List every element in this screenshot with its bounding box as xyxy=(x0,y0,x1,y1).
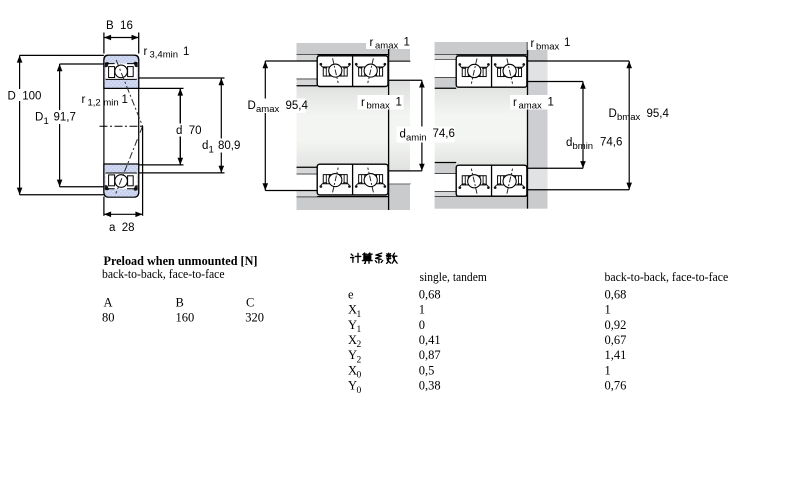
svg-text:320: 320 xyxy=(245,311,264,325)
svg-text:bmax: bmax xyxy=(536,42,559,53)
svg-text:r: r xyxy=(513,97,517,109)
svg-text:1: 1 xyxy=(44,116,49,127)
svg-text:91,7: 91,7 xyxy=(54,112,76,124)
svg-text:bmin: bmin xyxy=(573,141,594,152)
svg-text:1: 1 xyxy=(548,97,554,109)
svg-text:0,92: 0,92 xyxy=(605,318,627,332)
svg-text:C: C xyxy=(246,296,254,310)
svg-text:1: 1 xyxy=(209,145,214,156)
svg-text:0,41: 0,41 xyxy=(419,333,441,347)
svg-text:0,87: 0,87 xyxy=(419,348,441,362)
svg-text:d: d xyxy=(566,137,572,149)
svg-text:1,2 min: 1,2 min xyxy=(88,98,119,109)
svg-text:D 100: D 100 xyxy=(8,91,42,103)
svg-text:0,5: 0,5 xyxy=(419,363,435,377)
svg-text:74,6: 74,6 xyxy=(600,137,622,149)
svg-text:1: 1 xyxy=(396,97,402,109)
svg-text:0,38: 0,38 xyxy=(419,379,441,393)
svg-text:1: 1 xyxy=(183,46,189,58)
svg-text:0,67: 0,67 xyxy=(605,333,627,347)
svg-text:95,4: 95,4 xyxy=(286,100,309,112)
svg-text:0,68: 0,68 xyxy=(419,287,441,301)
svg-text:r: r xyxy=(82,94,86,106)
svg-text:a 28: a 28 xyxy=(109,222,135,234)
svg-text:80: 80 xyxy=(102,311,115,325)
svg-text:r: r xyxy=(361,97,365,109)
svg-text:d: d xyxy=(202,140,208,152)
svg-text:1: 1 xyxy=(357,310,362,320)
svg-text:1: 1 xyxy=(605,363,611,377)
svg-text:amax: amax xyxy=(375,41,398,52)
svg-text:single, tandem: single, tandem xyxy=(420,270,488,284)
svg-text:B 16: B 16 xyxy=(106,20,133,32)
svg-text:0,68: 0,68 xyxy=(605,287,627,301)
svg-text:D: D xyxy=(609,108,617,120)
svg-text:160: 160 xyxy=(176,311,195,325)
svg-text:1: 1 xyxy=(357,325,362,335)
svg-text:D: D xyxy=(248,100,256,112)
svg-text:back-to-back, face-to-face: back-to-back, face-to-face xyxy=(102,267,225,281)
svg-text:A: A xyxy=(104,296,113,310)
svg-text:80,9: 80,9 xyxy=(218,140,240,152)
svg-text:r: r xyxy=(531,38,535,50)
svg-text:1: 1 xyxy=(605,303,611,317)
svg-text:d: d xyxy=(400,129,406,141)
svg-text:bmax: bmax xyxy=(367,101,390,112)
svg-text:B: B xyxy=(176,296,184,310)
svg-text:1: 1 xyxy=(122,94,128,106)
svg-text:0: 0 xyxy=(419,318,425,332)
svg-text:0: 0 xyxy=(357,371,362,381)
svg-text:0: 0 xyxy=(357,386,362,396)
svg-text:1: 1 xyxy=(564,37,570,49)
svg-text:1,41: 1,41 xyxy=(605,348,627,362)
svg-text:r: r xyxy=(370,37,374,49)
svg-text:2: 2 xyxy=(357,355,362,365)
svg-text:0,76: 0,76 xyxy=(605,379,627,393)
svg-text:1: 1 xyxy=(419,303,425,317)
svg-text:e: e xyxy=(348,287,354,301)
svg-text:r: r xyxy=(144,46,148,58)
svg-text:1: 1 xyxy=(404,37,410,49)
svg-text:3,4min: 3,4min xyxy=(150,50,179,61)
svg-text:Preload when unmounted [N]: Preload when unmounted [N] xyxy=(104,253,258,268)
svg-text:D: D xyxy=(35,112,43,124)
svg-text:bmax: bmax xyxy=(617,112,640,123)
svg-text:amax: amax xyxy=(519,101,542,112)
svg-text:2: 2 xyxy=(357,340,362,350)
svg-text:74,6: 74,6 xyxy=(433,128,455,140)
svg-text:d 70: d 70 xyxy=(176,125,202,137)
svg-text:95,4: 95,4 xyxy=(647,108,670,120)
svg-text:amax: amax xyxy=(256,104,279,115)
svg-text:amin: amin xyxy=(406,133,427,144)
svg-text:back-to-back, face-to-face: back-to-back, face-to-face xyxy=(605,270,729,284)
